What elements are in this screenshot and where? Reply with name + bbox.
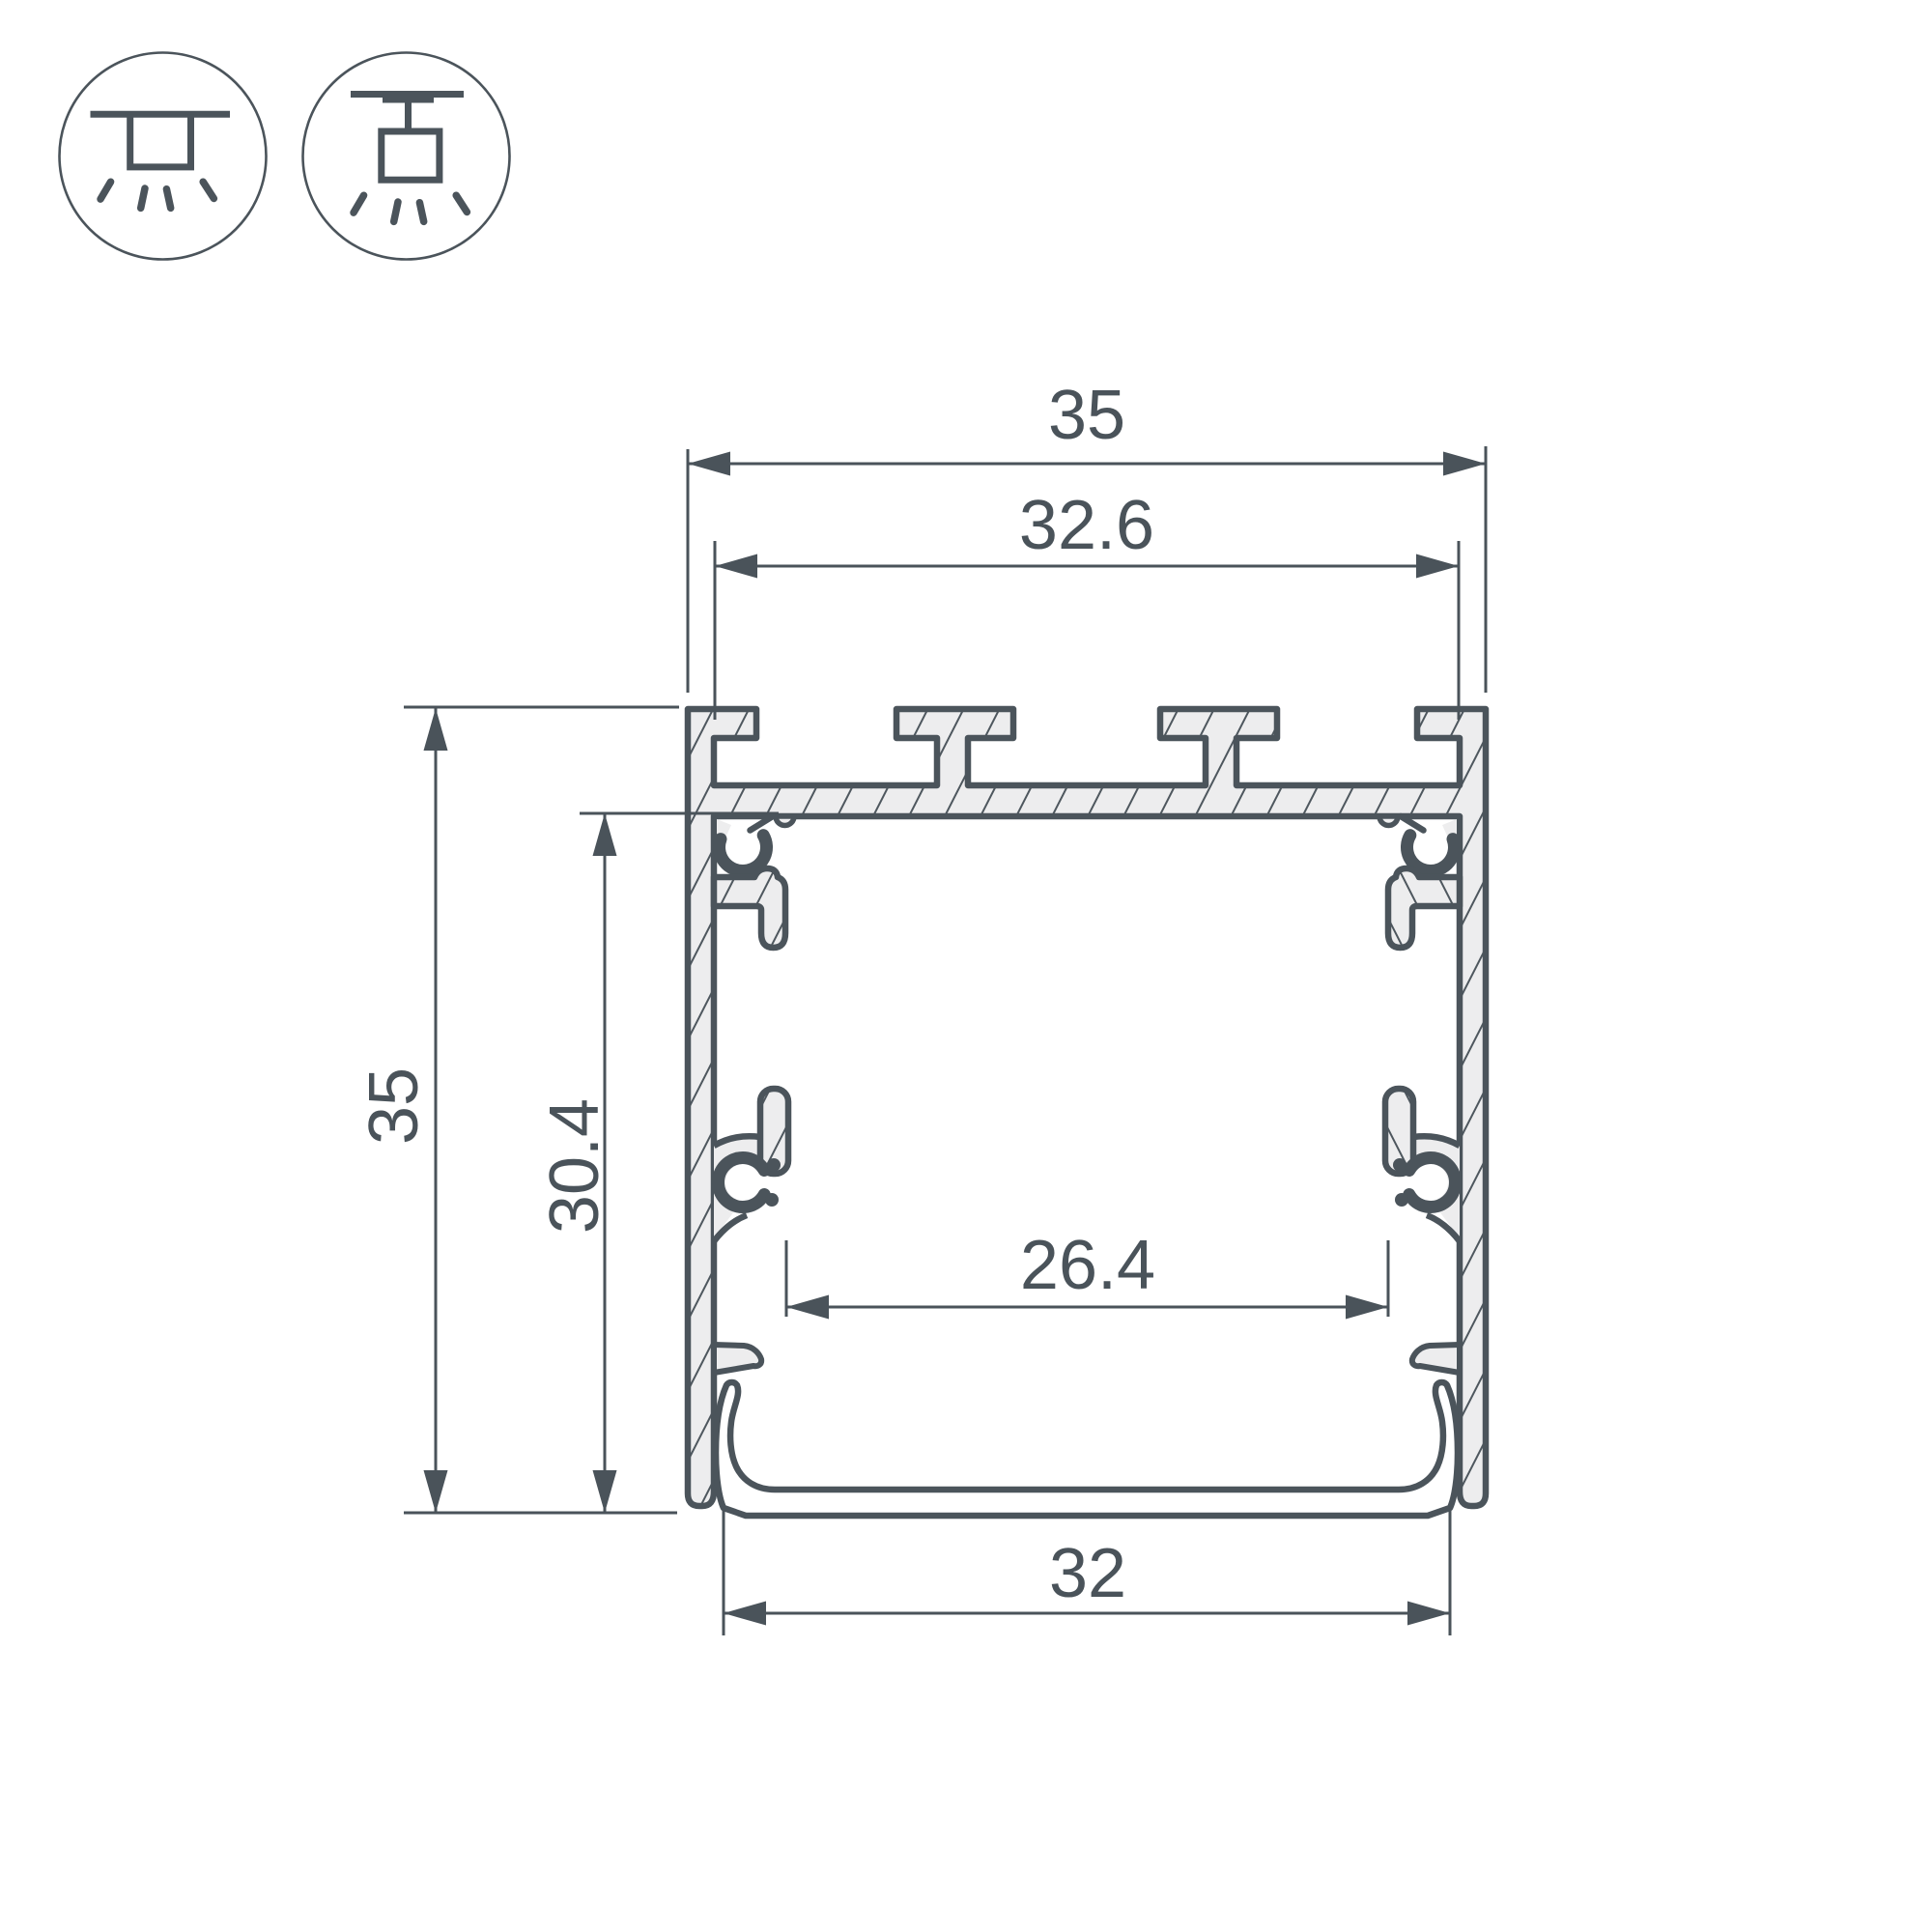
svg-text:30.4: 30.4	[536, 1098, 613, 1234]
svg-text:32.6: 32.6	[1019, 487, 1154, 564]
svg-text:26.4: 26.4	[1020, 1227, 1155, 1304]
svg-text:35: 35	[355, 1067, 433, 1145]
svg-text:35: 35	[1048, 377, 1125, 454]
svg-text:32: 32	[1049, 1535, 1126, 1612]
